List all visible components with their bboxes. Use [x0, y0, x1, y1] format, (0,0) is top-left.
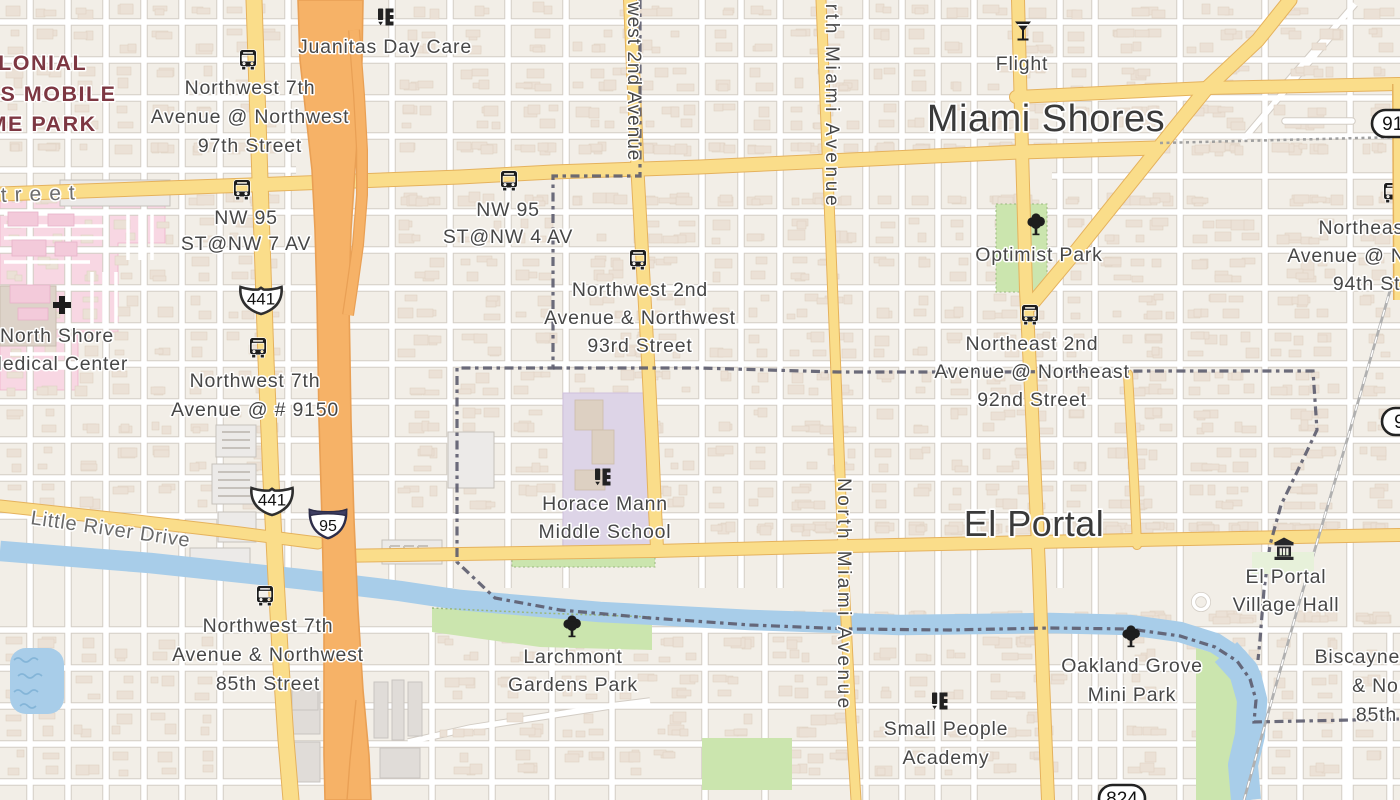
- svg-text:93rd Street: 93rd Street: [587, 335, 692, 357]
- svg-text:Northwest 7th: Northwest 7th: [190, 370, 321, 392]
- svg-text:915: 915: [1394, 412, 1400, 433]
- svg-text:Small People: Small People: [884, 718, 1009, 740]
- svg-text:North Miami Avenue: North Miami Avenue: [833, 478, 854, 712]
- svg-text:95: 95: [319, 518, 337, 535]
- svg-text:Medical Center: Medical Center: [0, 353, 128, 375]
- svg-text:El Portal: El Portal: [964, 503, 1105, 544]
- svg-text:441: 441: [247, 290, 275, 309]
- svg-text:Flight: Flight: [996, 53, 1048, 75]
- svg-text:Northeast 2nd: Northeast 2nd: [966, 333, 1099, 355]
- svg-text:Larchmont: Larchmont: [523, 646, 622, 668]
- svg-text:Biscayne Boulevard: Biscayne Boulevard: [1315, 646, 1400, 668]
- svg-text:Optimist Park: Optimist Park: [975, 244, 1102, 266]
- svg-text:Northeast 2nd: Northeast 2nd: [1319, 217, 1400, 239]
- svg-text:Village Hall: Village Hall: [1233, 594, 1340, 616]
- svg-text:Avenue & Northwest: Avenue & Northwest: [544, 307, 736, 329]
- svg-text:Avenue @ # 9150: Avenue @ # 9150: [171, 399, 339, 421]
- svg-text:Avenue @ Northeast: Avenue @ Northeast: [1287, 245, 1400, 267]
- svg-text:441: 441: [258, 491, 286, 510]
- svg-text:Avenue & Northwest: Avenue & Northwest: [172, 644, 364, 666]
- svg-text:HOME PARK: HOME PARK: [0, 112, 97, 136]
- svg-text:Avenue @ Northwest: Avenue @ Northwest: [151, 106, 350, 128]
- svg-text:94th Street: 94th Street: [1333, 273, 1400, 295]
- svg-text:west 2nd Avenue: west 2nd Avenue: [623, 1, 644, 161]
- svg-text:Avenue @ Northeast: Avenue @ Northeast: [934, 361, 1129, 383]
- svg-text:Gardens Park: Gardens Park: [508, 674, 638, 696]
- svg-text:Northwest 7th: Northwest 7th: [203, 615, 334, 637]
- svg-text:NW 95: NW 95: [476, 199, 540, 221]
- svg-text:824: 824: [1106, 789, 1138, 800]
- svg-text:COLONIAL: COLONIAL: [0, 51, 87, 75]
- svg-text:916: 916: [1382, 114, 1400, 135]
- svg-text:Northwest 2nd: Northwest 2nd: [572, 279, 708, 301]
- svg-text:El Portal: El Portal: [1246, 566, 1327, 588]
- svg-text:North Shore: North Shore: [0, 325, 114, 347]
- svg-text:ST@NW 4 AV: ST@NW 4 AV: [443, 226, 573, 248]
- svg-text:treet: treet: [0, 181, 83, 207]
- svg-text:97th Street: 97th Street: [198, 135, 302, 157]
- svg-text:Middle School: Middle School: [539, 521, 672, 543]
- svg-text:Oakland Grove: Oakland Grove: [1061, 655, 1203, 677]
- svg-text:Horace Mann: Horace Mann: [542, 493, 668, 515]
- svg-text:Northwest 7th: Northwest 7th: [185, 77, 316, 99]
- svg-text:85th Street: 85th Street: [216, 673, 320, 695]
- svg-text:Juanitas Day Care: Juanitas Day Care: [298, 36, 472, 58]
- svg-text:Miami Shores: Miami Shores: [927, 98, 1165, 140]
- svg-text:Mini Park: Mini Park: [1088, 684, 1176, 706]
- svg-text:North Miami Avenue: North Miami Avenue: [821, 0, 842, 209]
- svg-text:ACRES MOBILE: ACRES MOBILE: [0, 82, 116, 106]
- svg-text:ST@NW 7 AV: ST@NW 7 AV: [181, 233, 311, 255]
- svg-text:92nd Street: 92nd Street: [977, 389, 1087, 411]
- svg-text:NW 95: NW 95: [214, 207, 278, 229]
- svg-text:Academy: Academy: [903, 747, 990, 769]
- svg-text:& Northeast: & Northeast: [1352, 675, 1400, 697]
- svg-text:85th Street: 85th Street: [1356, 704, 1400, 726]
